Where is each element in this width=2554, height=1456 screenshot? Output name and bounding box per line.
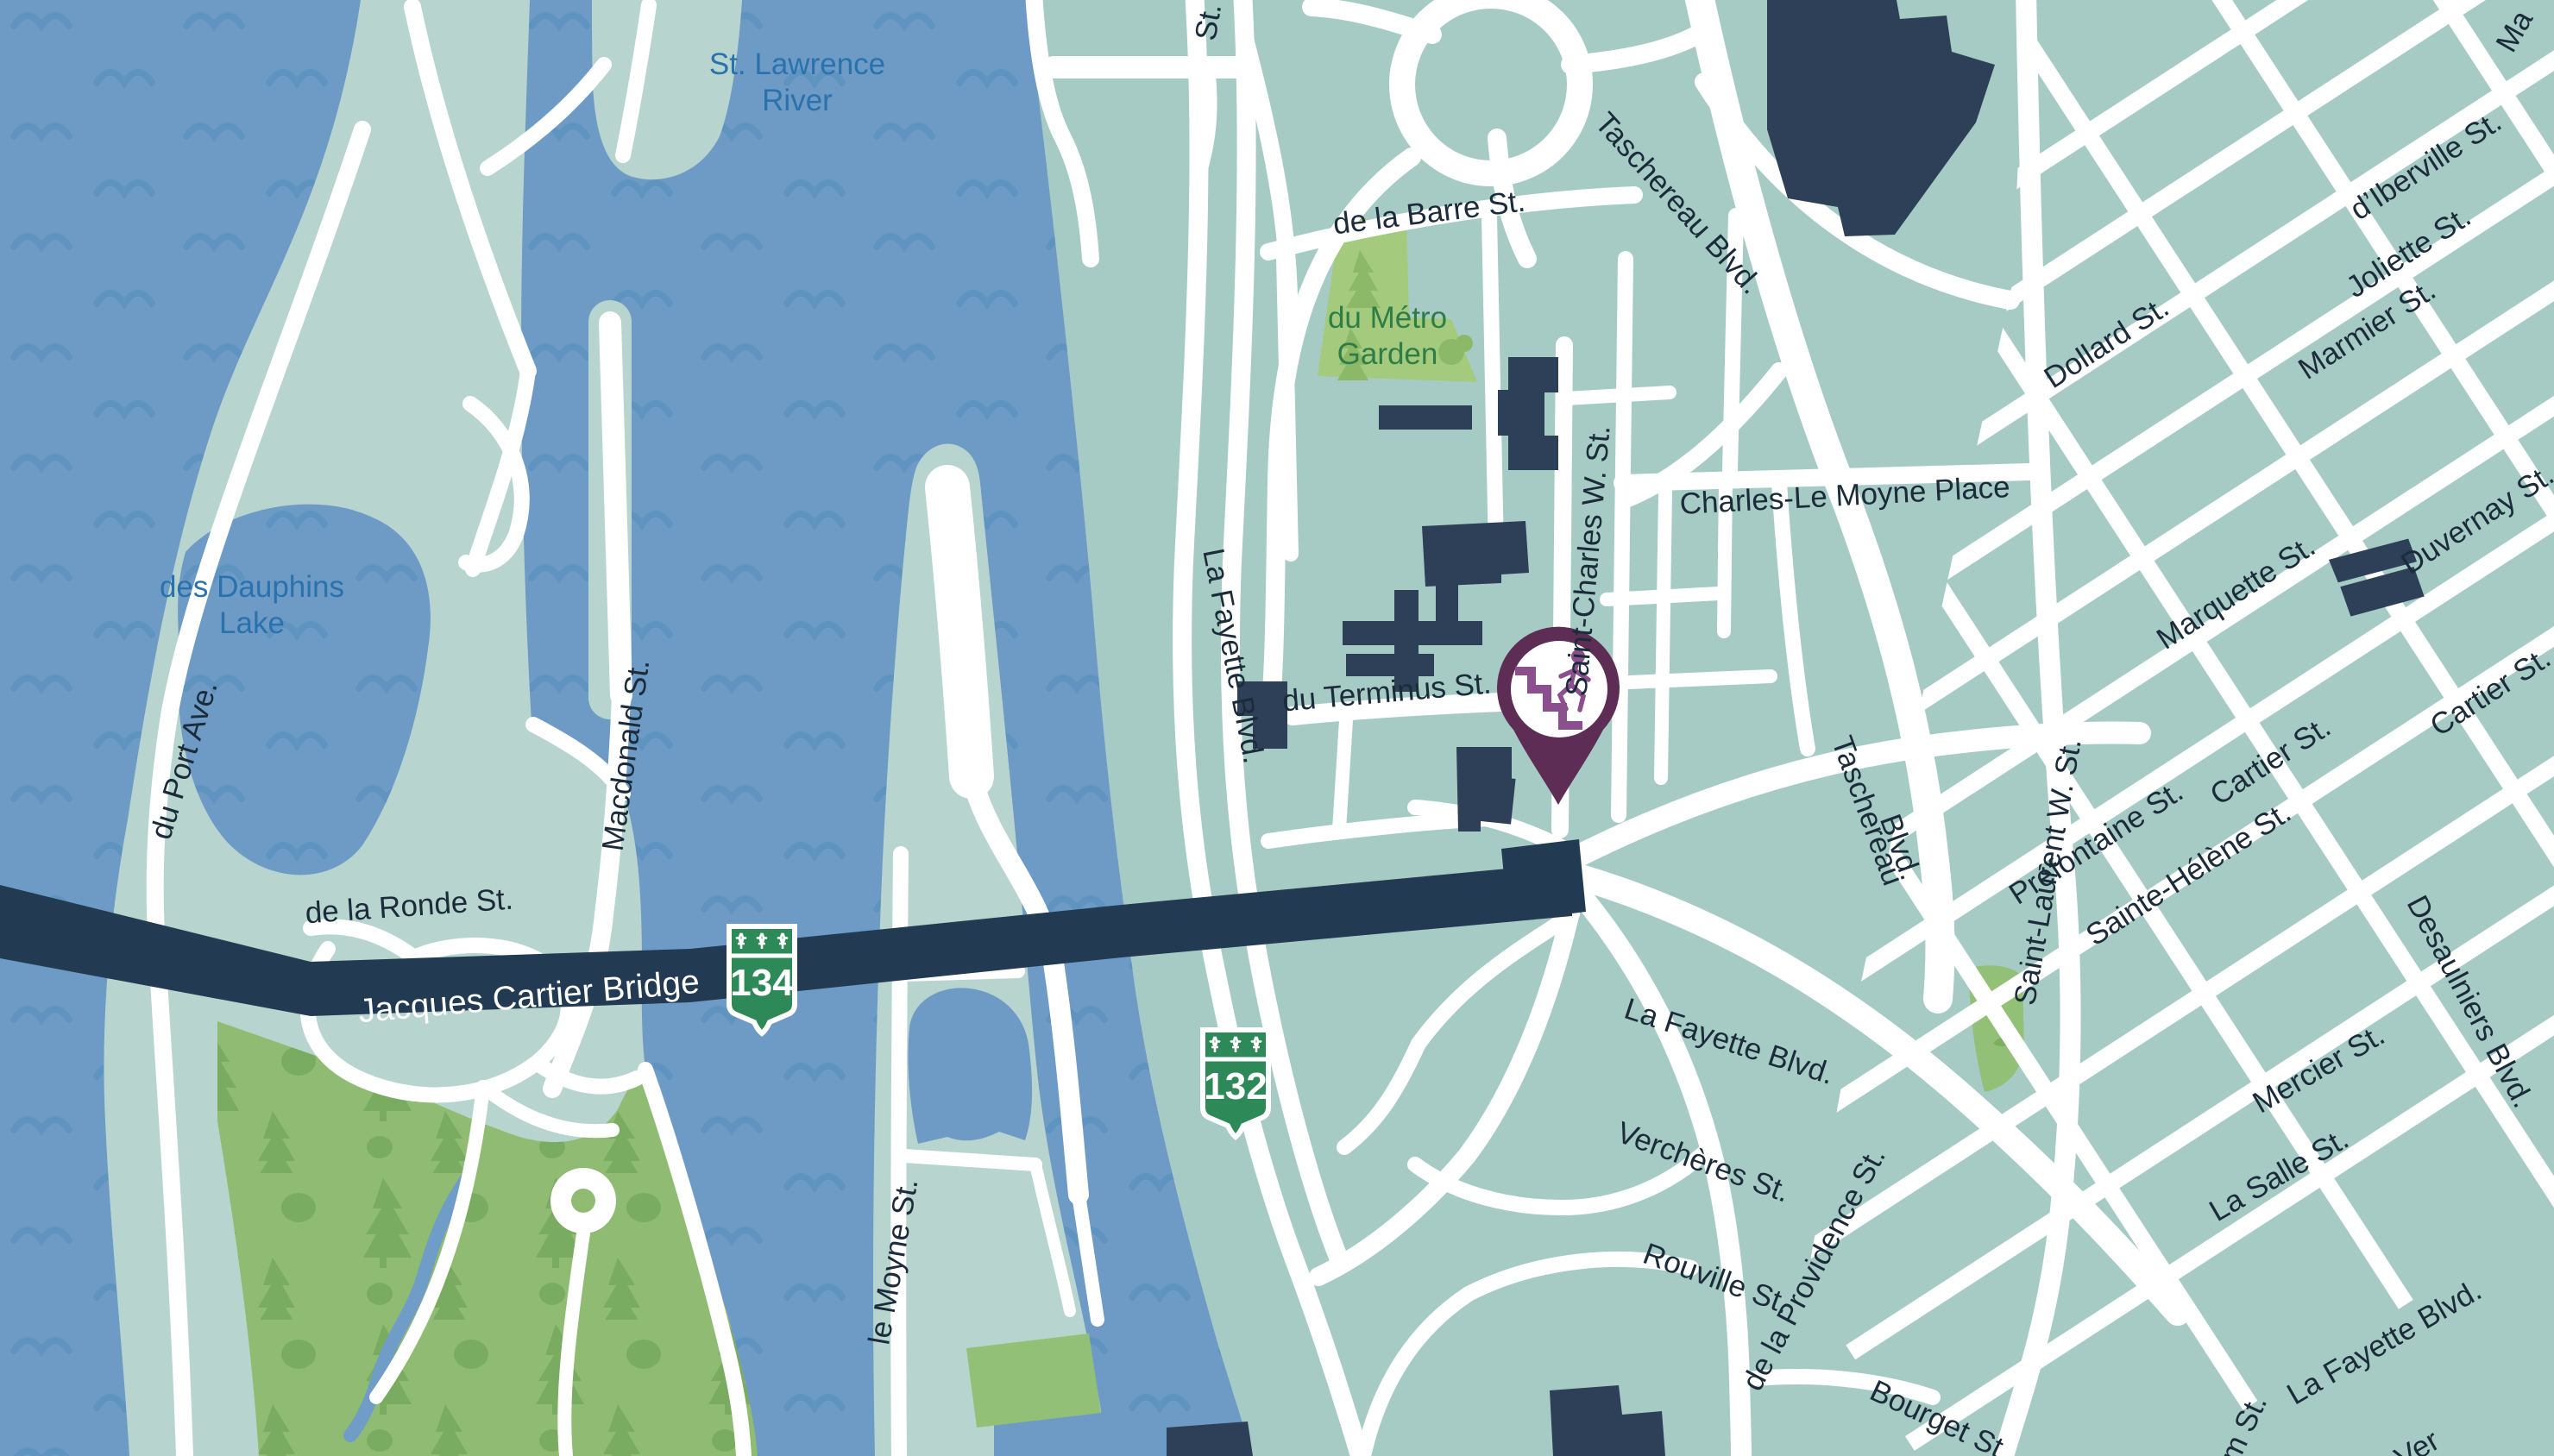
svg-text:des Dauphins: des Dauphins [160, 570, 344, 604]
svg-text:St. Lawrence: St. Lawrence [709, 47, 885, 81]
svg-text:St.: St. [1189, 1, 1229, 43]
svg-text:132: 132 [1204, 1065, 1267, 1108]
svg-text:Garden: Garden [1337, 337, 1438, 371]
svg-text:134: 134 [730, 962, 794, 1004]
svg-text:River: River [762, 84, 833, 117]
svg-text:du Métro: du Métro [1328, 301, 1447, 335]
svg-text:Lake: Lake [219, 606, 285, 640]
